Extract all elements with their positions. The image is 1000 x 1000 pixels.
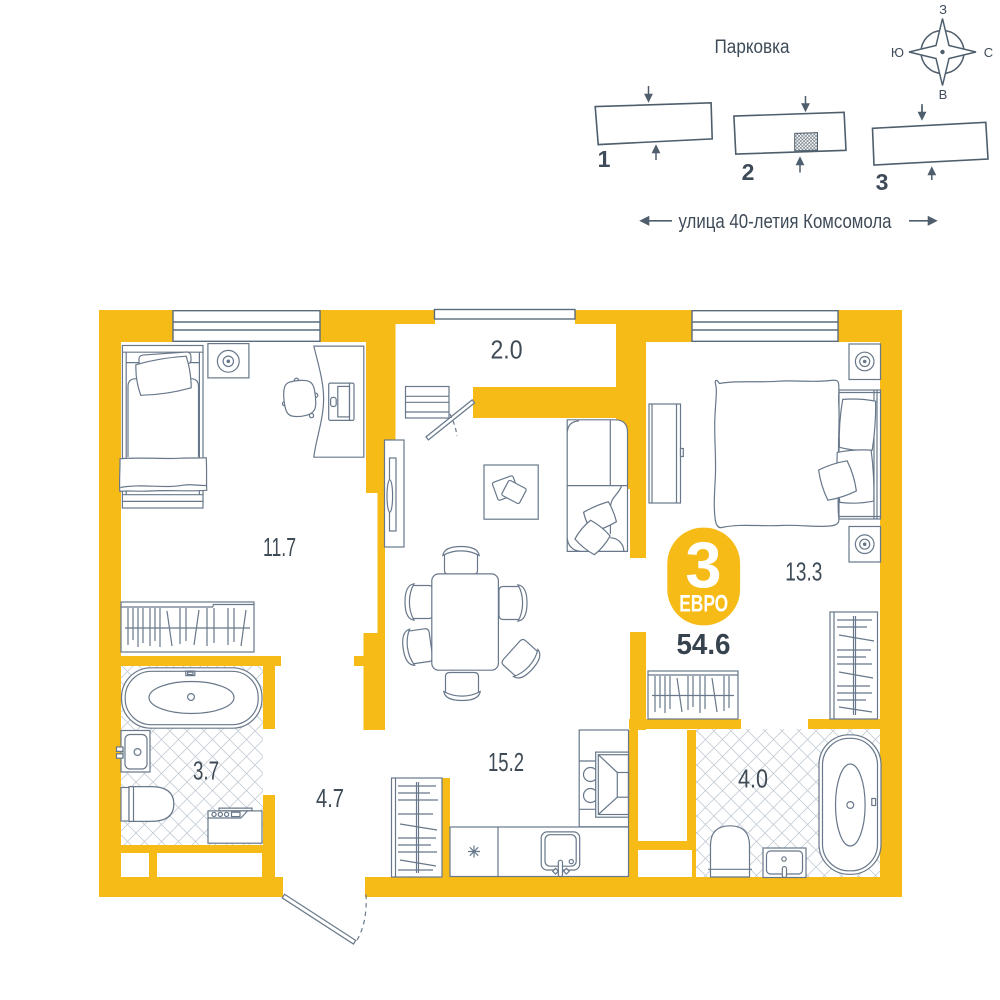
svg-text:2.0: 2.0 <box>491 335 523 365</box>
svg-text:1: 1 <box>598 146 611 172</box>
svg-text:С: С <box>984 45 993 60</box>
svg-text:13.3: 13.3 <box>785 557 822 587</box>
svg-text:улица 40-летия Комсомола: улица 40-летия Комсомола <box>679 210 892 233</box>
svg-text:11.7: 11.7 <box>263 532 296 562</box>
svg-text:ЕВРО: ЕВРО <box>679 591 728 618</box>
svg-text:В: В <box>939 87 948 102</box>
svg-text:2: 2 <box>742 159 755 185</box>
svg-text:4.7: 4.7 <box>316 783 344 813</box>
svg-text:З: З <box>939 2 947 17</box>
svg-text:Ю: Ю <box>891 45 904 60</box>
svg-text:3: 3 <box>876 169 889 195</box>
svg-text:Парковка: Парковка <box>715 37 790 58</box>
svg-text:15.2: 15.2 <box>488 747 524 777</box>
svg-text:3.7: 3.7 <box>193 756 219 786</box>
svg-text:54.6: 54.6 <box>677 629 731 661</box>
svg-text:4.0: 4.0 <box>738 764 768 794</box>
